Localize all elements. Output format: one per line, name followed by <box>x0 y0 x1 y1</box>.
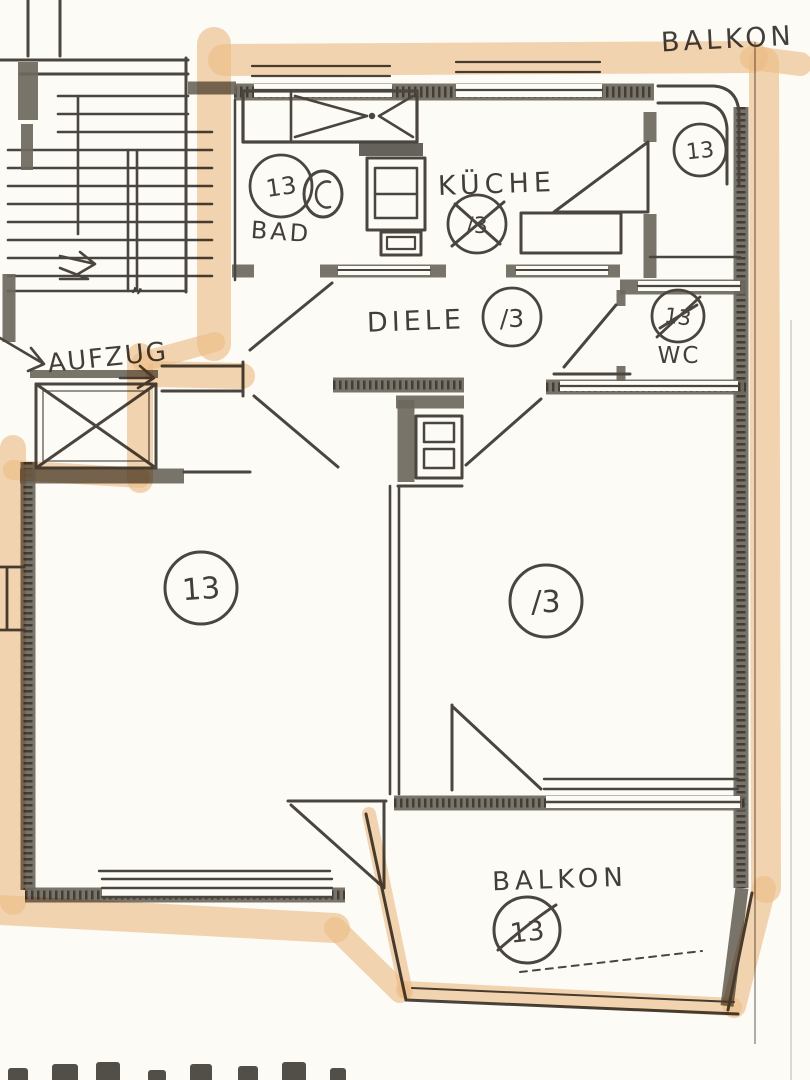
staircase <box>0 0 212 292</box>
label-kueche: KÜCHE <box>437 166 556 202</box>
right-room-door-swing <box>466 399 541 465</box>
right-room-balcony-door <box>452 705 541 790</box>
room-number-circles: 13 13 /3 /3 13 13 /3 13 <box>165 124 726 963</box>
room-number-bad: 13 <box>264 171 298 203</box>
room-number-left: 13 <box>181 571 222 609</box>
room-number-balkon-bottom: 13 <box>509 915 546 949</box>
left-room-door-swing <box>254 396 338 467</box>
top-right-parapet <box>650 86 740 257</box>
label-bad: BAD <box>250 216 312 248</box>
room-number-balkon-top: 13 <box>685 138 715 166</box>
bath-door-swing <box>250 283 332 350</box>
wc-door-swing <box>554 305 630 374</box>
entry-arrow-left <box>0 338 44 371</box>
room-number-right: /3 <box>531 585 560 620</box>
room-divider-wall <box>390 486 399 794</box>
cutoff-marks <box>8 1062 346 1080</box>
label-wc: WC <box>658 343 701 369</box>
kitchen-counter <box>521 213 621 253</box>
label-diele: DIELE <box>366 304 465 338</box>
floor-plan-page: 13 13 /3 /3 13 13 /3 13 BALKON KÜCHE BAD… <box>0 0 810 1080</box>
label-balkon-bottom: BALKON <box>492 863 629 898</box>
kitchen-door-swing <box>554 142 648 212</box>
crossout-kueche <box>452 202 504 246</box>
bathtub-drain <box>369 113 375 119</box>
room-number-diele: /3 <box>500 304 524 333</box>
floor-plan-svg: 13 13 /3 /3 13 13 /3 13 BALKON KÜCHE BAD… <box>0 0 810 1080</box>
